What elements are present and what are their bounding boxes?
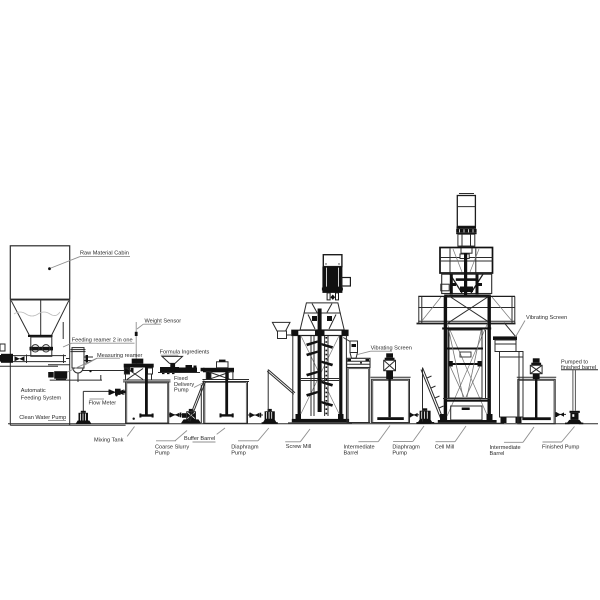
svg-text:Mixing Tank: Mixing Tank xyxy=(94,437,124,443)
svg-text:Formula Ingredients: Formula Ingredients xyxy=(160,350,210,356)
svg-text:Pump: Pump xyxy=(392,450,407,456)
svg-text:Screw Mill: Screw Mill xyxy=(286,444,311,450)
svg-text:Weight Sensor: Weight Sensor xyxy=(145,319,182,325)
svg-text:Automatic: Automatic xyxy=(21,388,46,394)
svg-text:Pump: Pump xyxy=(174,387,189,393)
svg-text:Cell Mill: Cell Mill xyxy=(435,445,455,451)
svg-text:Finished Pump: Finished Pump xyxy=(542,445,579,451)
svg-text:Flow Meter: Flow Meter xyxy=(89,401,117,407)
svg-text:Raw Material Cabin: Raw Material Cabin xyxy=(80,251,129,257)
svg-text:Feeding System: Feeding System xyxy=(21,396,62,402)
svg-text:Vibrating Screen: Vibrating Screen xyxy=(526,315,567,321)
svg-text:Pump: Pump xyxy=(231,450,246,456)
svg-text:Feeding reamer 2 in one: Feeding reamer 2 in one xyxy=(72,338,133,344)
svg-text:Pump: Pump xyxy=(155,450,170,456)
svg-text:Barrel: Barrel xyxy=(490,451,505,457)
svg-text:finished barrel: finished barrel xyxy=(561,365,596,371)
svg-text:Buffer Barrel: Buffer Barrel xyxy=(184,436,215,442)
svg-text:Vibrating Screen: Vibrating Screen xyxy=(371,346,412,352)
svg-text:Barrel: Barrel xyxy=(344,450,359,456)
